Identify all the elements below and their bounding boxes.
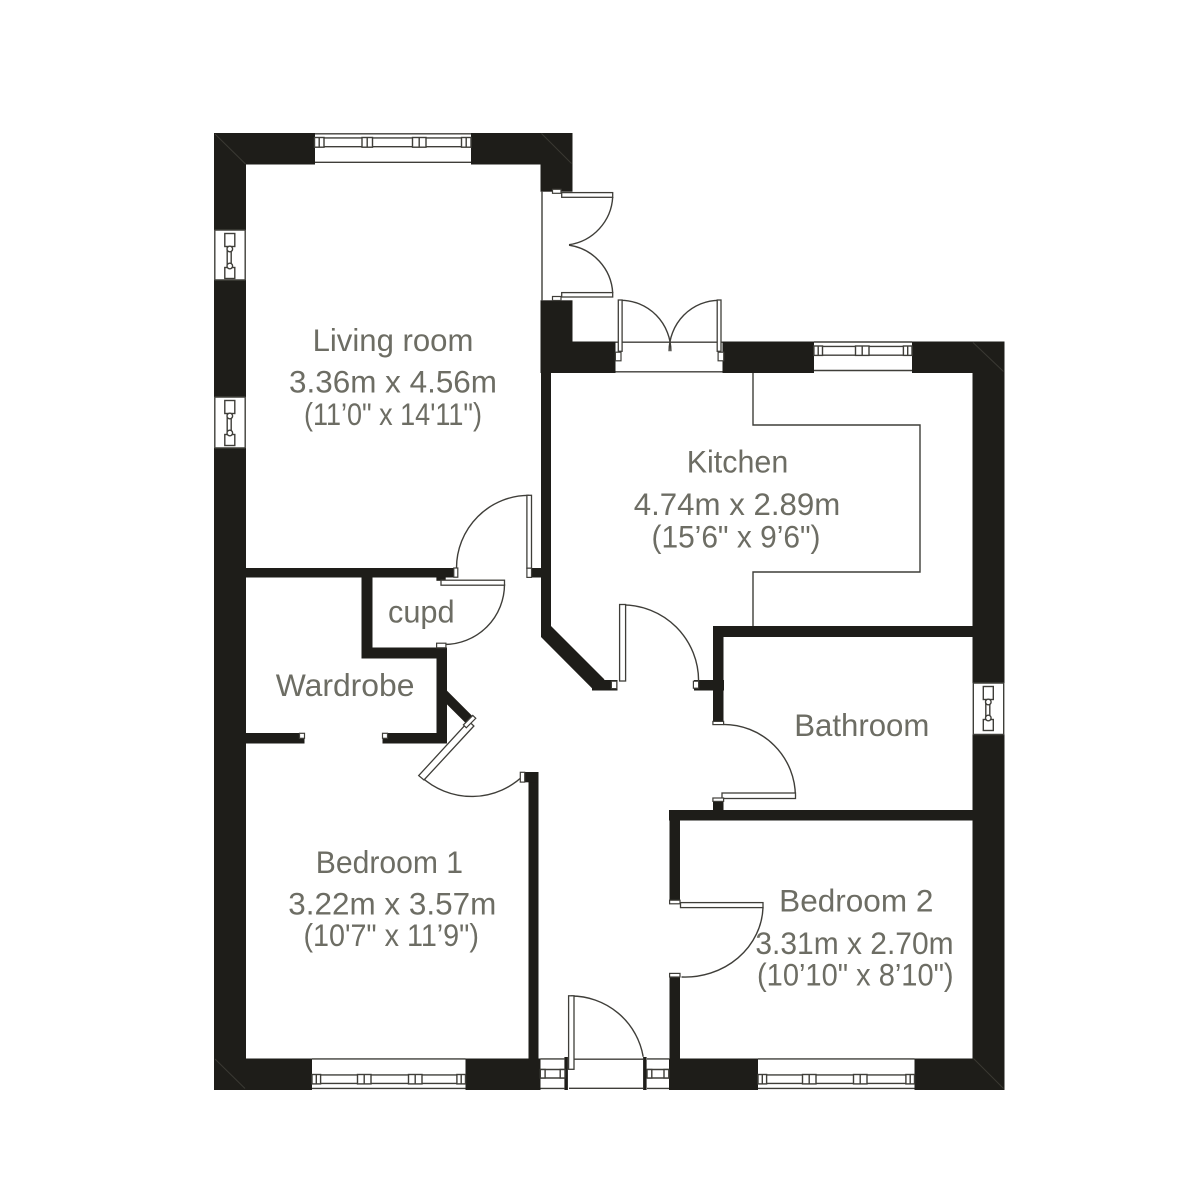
- svg-text:3.36m x 4.56m: 3.36m x 4.56m: [289, 364, 497, 400]
- svg-text:Bedroom 1: Bedroom 1: [316, 844, 463, 880]
- svg-text:4.74m x 2.89m: 4.74m x 2.89m: [634, 486, 841, 522]
- svg-text:(11’0" x 14'11"): (11’0" x 14'11"): [304, 396, 482, 432]
- svg-text:Bathroom: Bathroom: [794, 707, 929, 743]
- svg-text:(15’6" x 9’6"): (15’6" x 9’6"): [652, 519, 821, 555]
- svg-text:Living room: Living room: [313, 322, 474, 358]
- svg-text:Wardrobe: Wardrobe: [276, 667, 415, 703]
- svg-text:Bedroom 2: Bedroom 2: [779, 883, 933, 919]
- svg-text:Kitchen: Kitchen: [687, 444, 789, 480]
- svg-text:(10’10" x 8’10"): (10’10" x 8’10"): [757, 956, 954, 992]
- svg-text:cupd: cupd: [388, 594, 455, 630]
- svg-text:(10'7" x 11’9"): (10'7" x 11’9"): [303, 917, 479, 953]
- svg-text:3.22m x 3.57m: 3.22m x 3.57m: [288, 885, 496, 921]
